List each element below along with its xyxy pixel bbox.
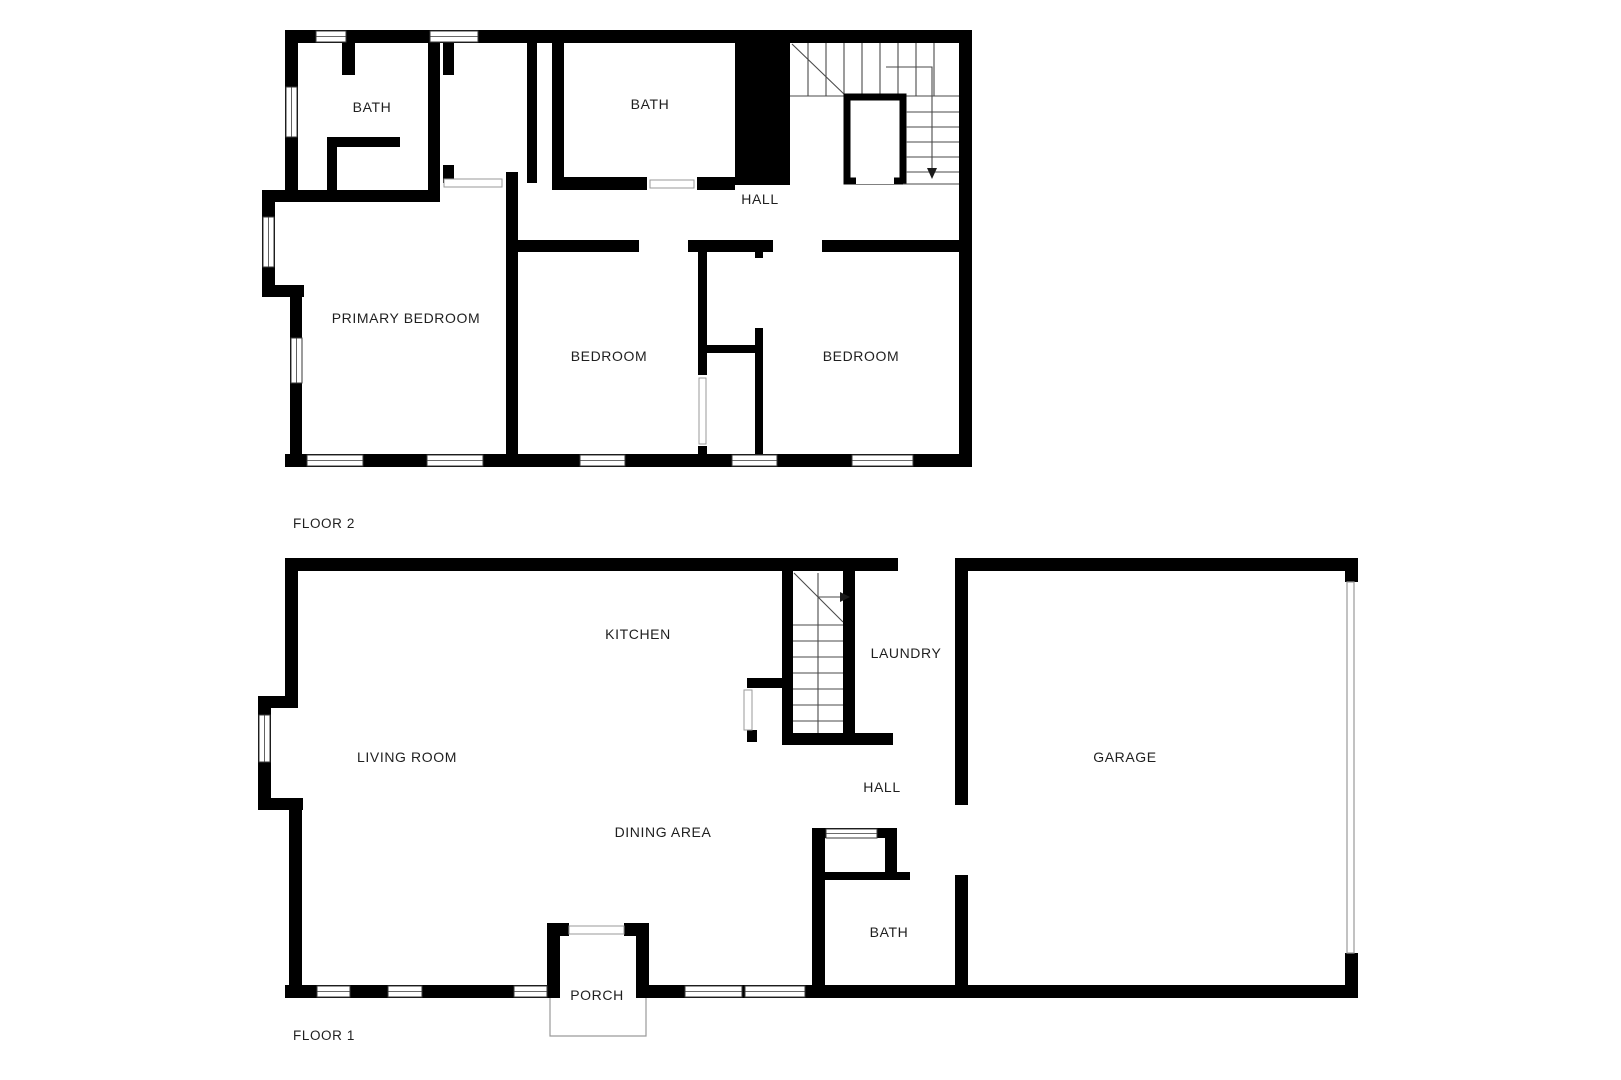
window-symbol [685,986,742,997]
garage-door-opening [1347,582,1354,953]
wall-segment [285,558,298,708]
window-symbol [286,87,297,137]
wall-segment [428,42,440,202]
door-opening [699,378,706,444]
wall-segment [547,923,569,936]
wall-segment [552,177,647,190]
window-symbol [317,986,350,997]
wall-segment [506,240,639,252]
wall-segment [959,30,972,467]
window-symbol [263,217,274,267]
floor1-stairs [793,573,850,733]
room-label-bath-right: BATH [631,96,670,112]
window-symbol [745,986,805,997]
floor-plan-drawing: BATH BATH HALL PRIMARY BEDROOM BEDROOM B… [0,0,1621,1080]
wall-segment [955,571,968,805]
window-symbol [307,455,363,466]
wall-segment [735,42,790,185]
wall-segment [527,42,537,183]
wall-segment [327,147,337,192]
wall-segment [747,678,782,688]
floor2-doors [444,179,706,444]
window-symbol [580,455,625,466]
floor-plan-page: BATH BATH HALL PRIMARY BEDROOM BEDROOM B… [0,0,1621,1080]
room-label-bath: BATH [870,924,909,940]
window-symbol [826,829,877,838]
floor1-labels: KITCHEN LAUNDRY LIVING ROOM HALL GARAGE … [293,626,1157,1043]
door-opening [569,926,624,934]
room-label-bath-left: BATH [353,99,392,115]
stair-down-arrow [927,168,937,179]
window-symbol [732,455,777,466]
wall-segment [697,177,735,190]
floor1-plan: KITCHEN LAUNDRY LIVING ROOM HALL GARAGE … [258,558,1358,1043]
wall-segment [506,172,518,467]
floor2-title: FLOOR 2 [293,516,355,531]
wall-segment [782,733,893,745]
wall-segment [955,558,1358,571]
wall-segment [747,730,757,742]
floor2-plan: BATH BATH HALL PRIMARY BEDROOM BEDROOM B… [262,30,972,531]
wall-segment [342,42,355,75]
room-label-hall: HALL [741,191,778,207]
room-label-dining-area: DINING AREA [615,824,712,840]
floor1-walls [258,558,1358,998]
stair-landing-opening [856,174,894,184]
door-opening [444,179,502,187]
room-label-hall: HALL [863,779,900,795]
wall-segment [327,137,400,147]
window-symbol [316,31,346,42]
wall-segment [812,828,825,998]
window-symbol [388,986,422,997]
floor2-stairs [790,43,959,184]
wall-segment [820,872,910,880]
window-symbol [259,715,270,762]
wall-segment [285,558,898,571]
room-label-living-room: LIVING ROOM [357,749,457,765]
room-label-garage: GARAGE [1093,749,1157,765]
wall-segment [822,240,959,252]
wall-segment [1345,558,1358,582]
wall-segment [285,30,972,43]
room-label-primary-bedroom: PRIMARY BEDROOM [332,310,481,326]
window-symbol [430,31,478,42]
door-opening [650,180,694,188]
porch-outline [550,998,646,1036]
floor1-title: FLOOR 1 [293,1028,355,1043]
wall-segment [698,446,707,460]
stair-landing [847,97,903,181]
wall-segment [262,190,440,202]
wall-segment [707,345,755,353]
floor1-doors [550,582,1354,1036]
stair-break-line [792,44,846,96]
room-label-bedroom-right: BEDROOM [823,348,900,364]
door-opening [744,690,752,730]
room-label-kitchen: KITCHEN [605,626,671,642]
wall-segment [698,252,707,375]
wall-segment [755,328,763,458]
window-symbol [514,986,547,997]
room-label-laundry: LAUNDRY [871,645,942,661]
wall-segment [624,923,649,936]
room-label-bedroom-middle: BEDROOM [571,348,648,364]
window-symbol [427,455,483,466]
window-symbol [291,338,302,383]
floor1-windows [259,715,877,997]
wall-segment [885,838,897,877]
wall-segment [755,240,763,258]
wall-segment [782,571,793,745]
wall-segment [289,798,302,998]
wall-segment [552,42,564,190]
room-label-porch: PORCH [570,987,624,1003]
wall-segment [955,875,968,998]
wall-segment [443,42,454,75]
window-symbol [852,455,913,466]
